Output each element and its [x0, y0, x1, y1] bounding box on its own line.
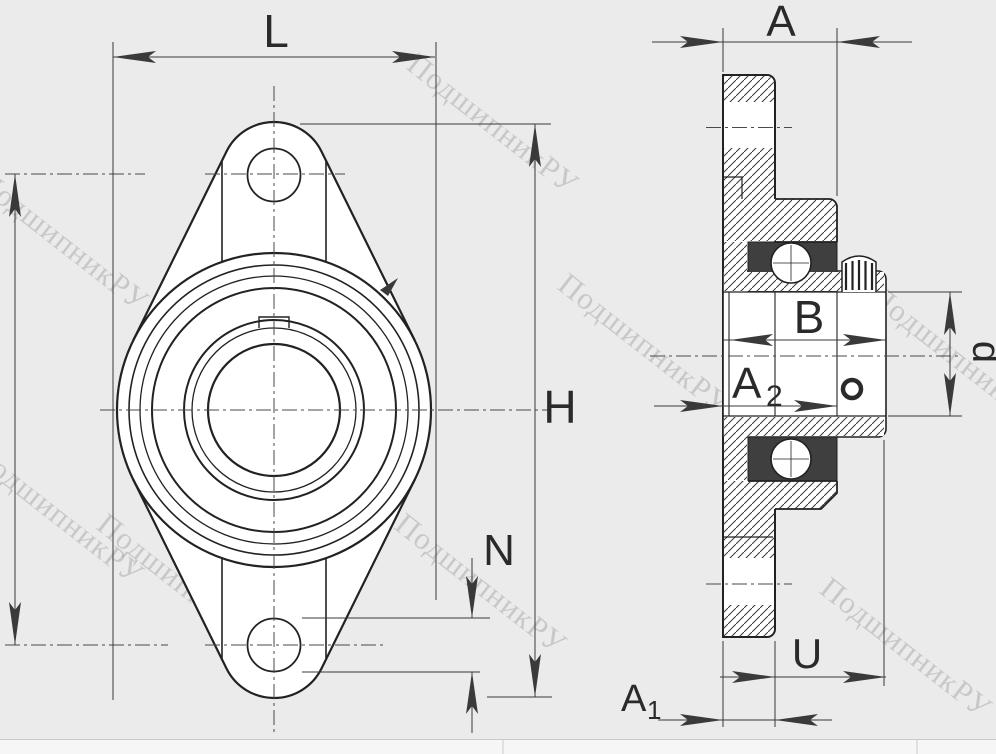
watermark-text: ПодшипникРУ [814, 570, 996, 725]
label-protrusion-U: U [792, 630, 822, 677]
dim-A: A [652, 0, 912, 196]
side-view [650, 75, 958, 637]
front-view [5, 86, 548, 732]
footer-bar [0, 739, 996, 754]
drawing-canvas: ПодшипникРУ ПодшипникРУ ПодшипникРУ Подш… [0, 0, 996, 754]
label-inner-ring-B: B [794, 291, 825, 343]
label-bore-d: d [964, 341, 996, 363]
label-height-H: H [543, 381, 576, 433]
label-A1-sub: 1 [647, 695, 661, 725]
label-flange-width-A: A [766, 0, 796, 46]
technical-drawing: ПодшипникРУ ПодшипникРУ ПодшипникРУ Подш… [0, 0, 996, 754]
label-width-L: L [263, 5, 289, 57]
dim-bolt-spacing [9, 174, 21, 645]
watermark-text: ПодшипникРУ [389, 506, 574, 661]
label-A2-sub: 2 [766, 380, 783, 413]
flange-bolt-hole-bottom [724, 558, 774, 605]
setscrew-hole [843, 380, 861, 398]
label-bolt-hole-N: N [483, 526, 515, 575]
watermark-text: ПодшипникРУ [552, 266, 737, 421]
label-A1: A [621, 678, 647, 720]
flange-bolt-hole-top [724, 103, 774, 148]
label-A2: A [732, 359, 762, 408]
watermark-text: ПодшипникРУ [0, 163, 156, 318]
